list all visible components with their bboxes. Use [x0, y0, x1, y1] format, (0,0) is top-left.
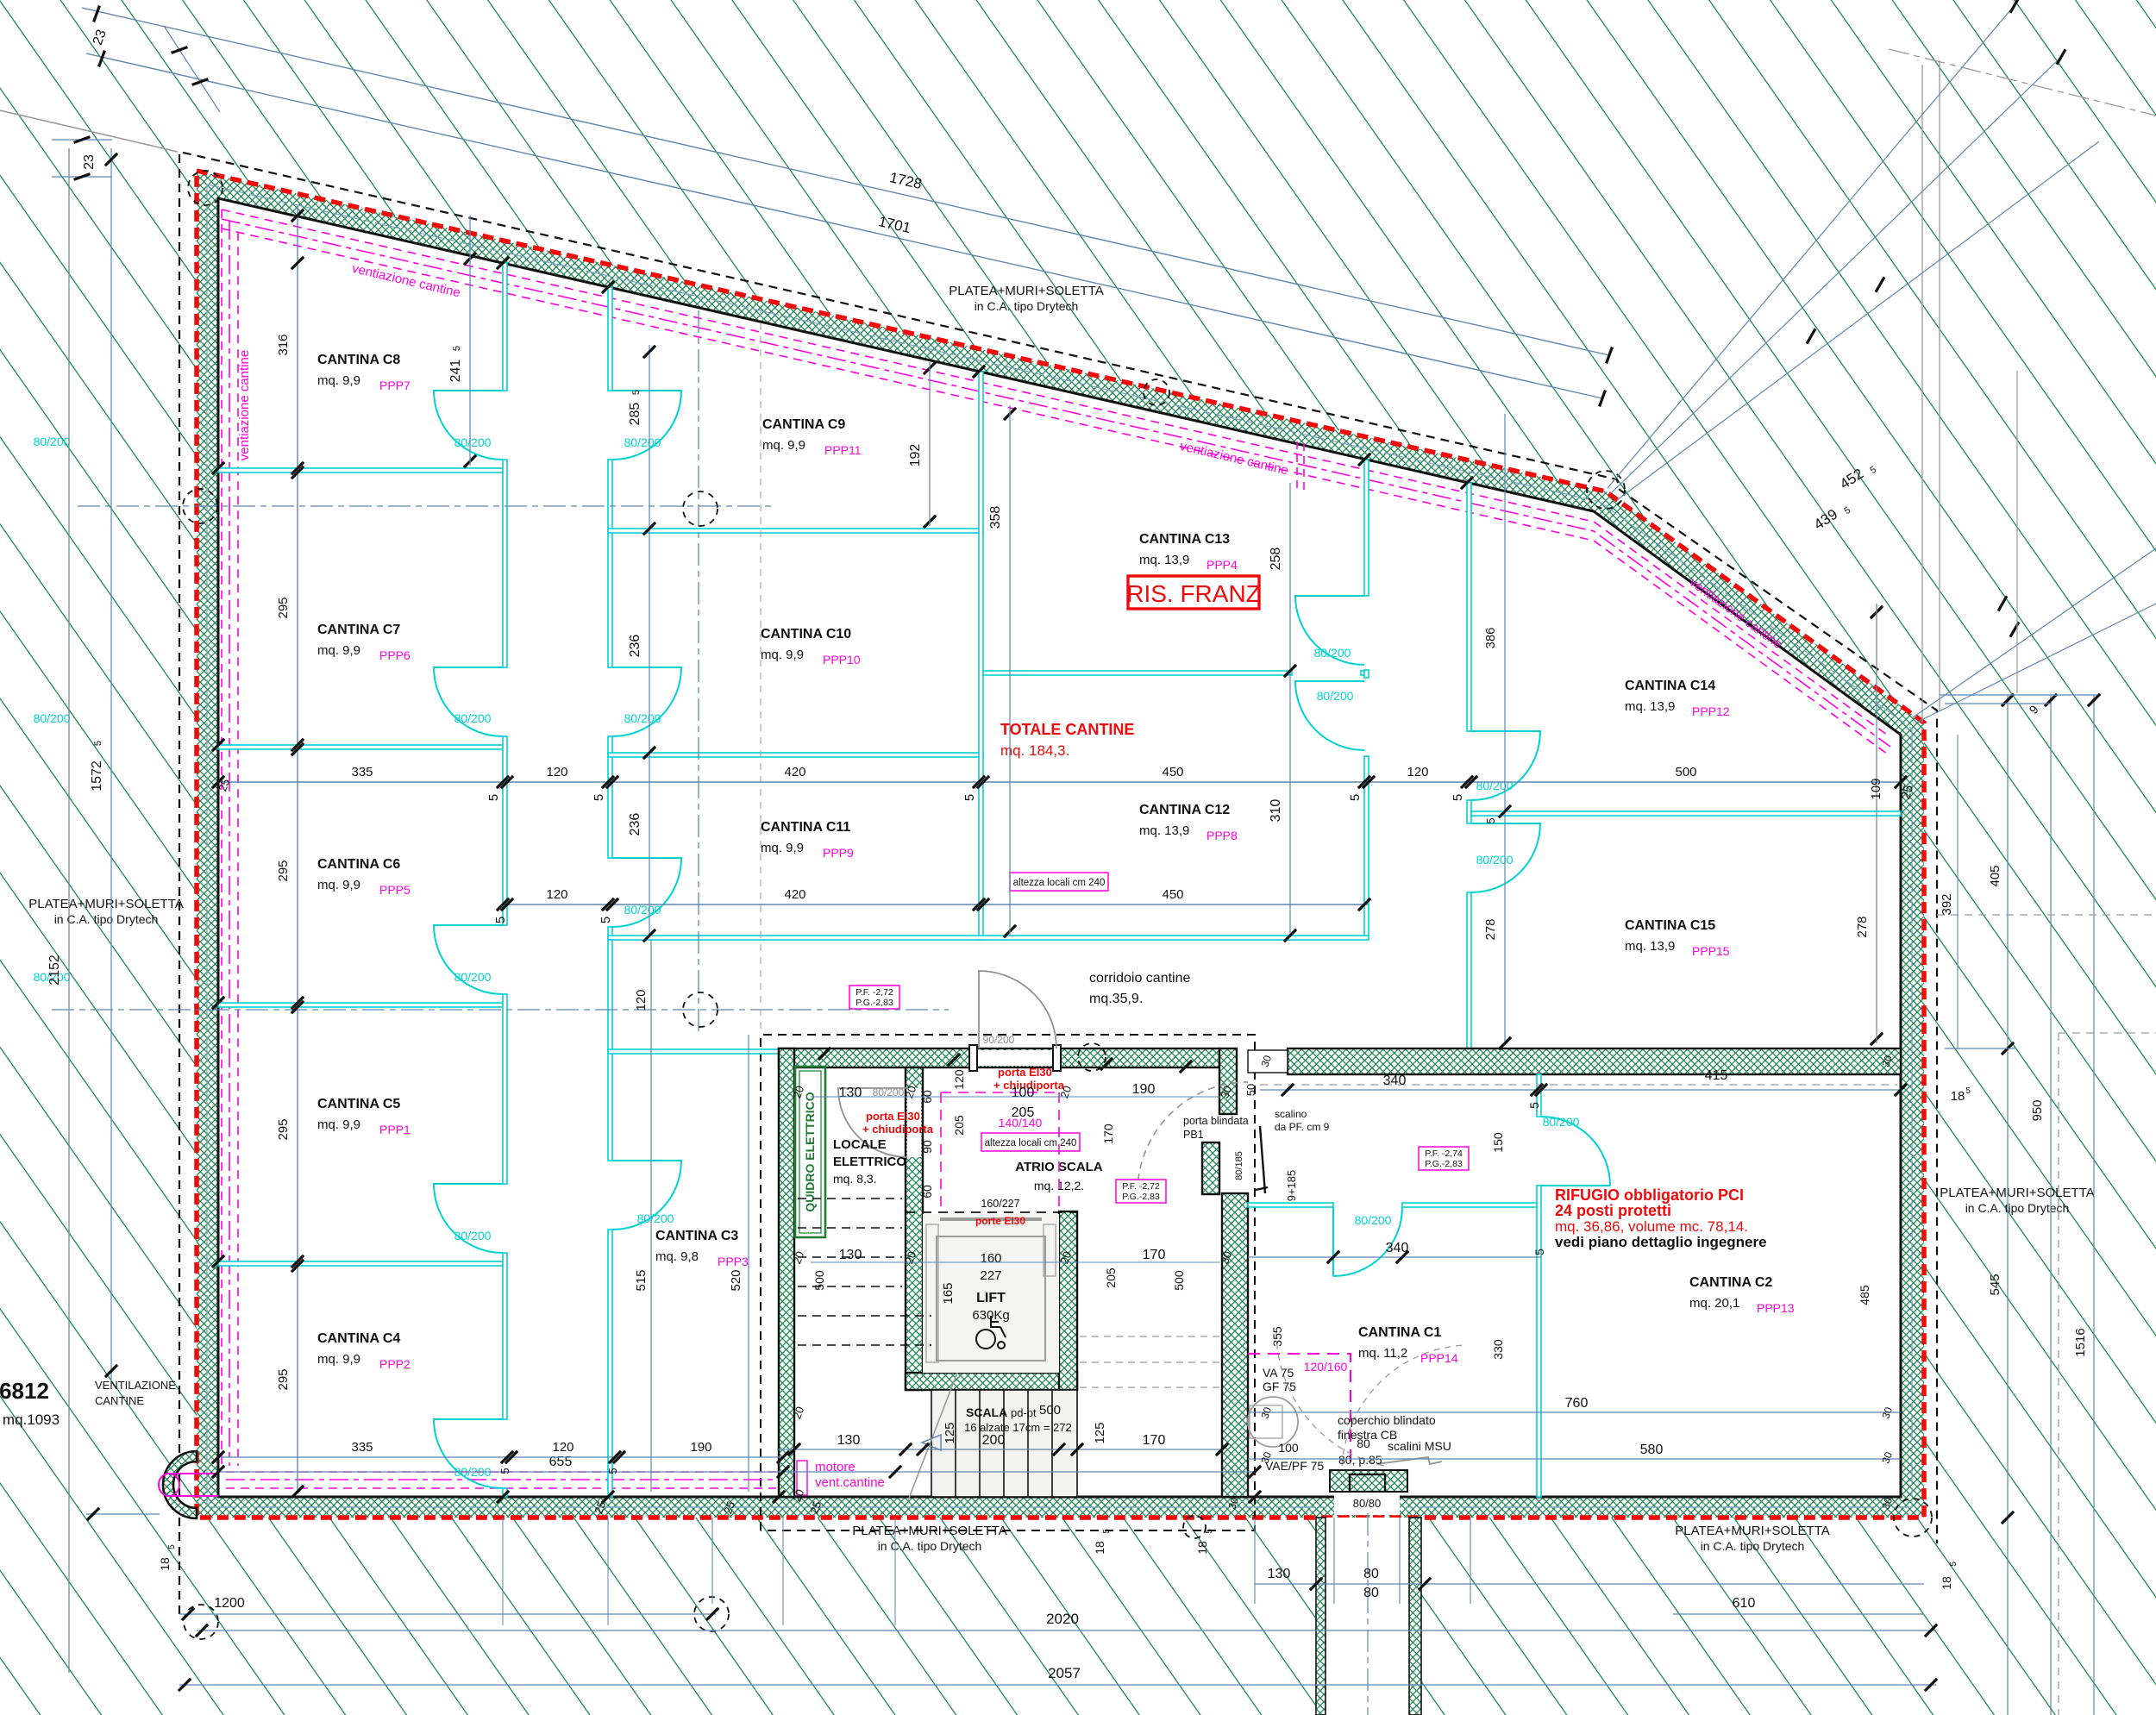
svg-text:RIFUGIO obbligatorio PCI: RIFUGIO obbligatorio PCI — [1555, 1186, 1744, 1204]
svg-text:5: 5 — [631, 390, 642, 395]
svg-text:90/200: 90/200 — [983, 1034, 1015, 1046]
svg-text:PPP12: PPP12 — [1692, 704, 1730, 718]
svg-text:545: 545 — [1988, 1274, 2002, 1295]
svg-text:P.G.-2,83: P.G.-2,83 — [1425, 1159, 1463, 1169]
svg-text:170: 170 — [1143, 1433, 1166, 1448]
svg-text:285: 285 — [628, 403, 642, 426]
svg-text:5: 5 — [1451, 794, 1465, 801]
svg-text:190: 190 — [1132, 1082, 1156, 1097]
svg-text:165: 165 — [941, 1282, 956, 1304]
svg-text:5: 5 — [962, 794, 977, 801]
svg-text:23: 23 — [82, 154, 97, 170]
svg-text:18: 18 — [1951, 1089, 1965, 1104]
svg-text:CANTINA C5: CANTINA C5 — [317, 1097, 400, 1111]
svg-text:altezza locali cm 240: altezza locali cm 240 — [985, 1138, 1077, 1149]
svg-text:CANTINA C6: CANTINA C6 — [317, 857, 400, 872]
svg-text:CANTINA C12: CANTINA C12 — [1139, 803, 1230, 817]
svg-text:295: 295 — [276, 1368, 291, 1390]
svg-text:2020: 2020 — [1046, 1611, 1079, 1627]
svg-text:5: 5 — [167, 1544, 177, 1549]
svg-text:278: 278 — [1855, 916, 1870, 937]
svg-text:VENTILAZIONE: VENTILAZIONE — [95, 1379, 176, 1392]
svg-text:CANTINA C15: CANTINA C15 — [1625, 918, 1715, 933]
svg-text:TOTALE CANTINE: TOTALE CANTINE — [1000, 721, 1134, 738]
svg-text:PLATEA+MURI+SOLETTA: PLATEA+MURI+SOLETTA — [1940, 1186, 2095, 1200]
svg-text:340: 340 — [1386, 1241, 1409, 1255]
svg-text:258: 258 — [1269, 548, 1283, 571]
svg-text:160/227: 160/227 — [981, 1198, 1019, 1210]
svg-text:RIS. FRANZ: RIS. FRANZ — [1126, 580, 1261, 607]
svg-text:CANTINA C14: CANTINA C14 — [1625, 679, 1715, 693]
svg-text:450: 450 — [1162, 765, 1183, 779]
svg-text:VAE/PF 75: VAE/PF 75 — [1265, 1459, 1324, 1473]
svg-text:CANTINE: CANTINE — [95, 1394, 144, 1407]
svg-text:80/200: 80/200 — [454, 711, 492, 725]
svg-text:1200: 1200 — [214, 1596, 245, 1611]
svg-text:CANTINA C11: CANTINA C11 — [761, 820, 850, 835]
svg-text:5: 5 — [592, 794, 606, 801]
svg-text:PPP2: PPP2 — [379, 1357, 411, 1371]
svg-text:PPP15: PPP15 — [1692, 944, 1730, 958]
svg-text:80/200: 80/200 — [454, 1229, 492, 1242]
svg-text:PPP6: PPP6 — [379, 648, 411, 662]
svg-text:CANTINA C2: CANTINA C2 — [1689, 1275, 1772, 1290]
svg-text:18: 18 — [1093, 1541, 1106, 1555]
svg-text:CANTINA C8: CANTINA C8 — [317, 353, 400, 367]
svg-text:mq.35,9.: mq.35,9. — [1089, 992, 1143, 1006]
svg-text:5: 5 — [1949, 1562, 1959, 1567]
svg-text:500: 500 — [1172, 1270, 1186, 1291]
svg-text:mq. 9,9: mq. 9,9 — [761, 648, 804, 662]
svg-text:scalini MSU: scalini MSU — [1388, 1439, 1451, 1453]
svg-text:PPP5: PPP5 — [379, 883, 411, 897]
svg-text:5: 5 — [606, 1468, 619, 1474]
svg-text:mq. 13,9: mq. 13,9 — [1625, 699, 1675, 714]
svg-text:LIFT: LIFT — [976, 1291, 1006, 1305]
svg-text:mq. 36,86, volume mc. 78,14.: mq. 36,86, volume mc. 78,14. — [1555, 1218, 1748, 1235]
svg-text:340: 340 — [1383, 1073, 1407, 1088]
svg-text:80/200: 80/200 — [1317, 689, 1354, 703]
svg-text:PLATEA+MURI+SOLETTA: PLATEA+MURI+SOLETTA — [28, 897, 184, 911]
svg-text:5: 5 — [452, 346, 462, 351]
svg-text:330: 330 — [1491, 1339, 1505, 1360]
svg-text:109: 109 — [1869, 778, 1883, 799]
svg-text:PLATEA+MURI+SOLETTA: PLATEA+MURI+SOLETTA — [1675, 1524, 1830, 1538]
svg-text:PPP14: PPP14 — [1420, 1351, 1458, 1365]
svg-text:130: 130 — [839, 1086, 862, 1100]
svg-text:mq. 11,2: mq. 11,2 — [1358, 1346, 1407, 1361]
svg-text:192: 192 — [908, 444, 923, 467]
svg-text:316: 316 — [276, 334, 291, 355]
svg-text:mq. 13,9: mq. 13,9 — [1139, 553, 1189, 567]
svg-text:5: 5 — [1102, 1529, 1112, 1534]
svg-text:335: 335 — [351, 765, 373, 779]
svg-text:in C.A. tipo Drytech: in C.A. tipo Drytech — [878, 1539, 982, 1553]
svg-text:80/80: 80/80 — [1353, 1497, 1382, 1510]
svg-text:580: 580 — [1640, 1443, 1664, 1457]
svg-text:120: 120 — [546, 887, 567, 902]
svg-text:5: 5 — [599, 917, 613, 923]
svg-text:CANTINA C9: CANTINA C9 — [762, 417, 845, 432]
svg-text:50: 50 — [1244, 1084, 1257, 1096]
svg-text:mq. 13,9: mq. 13,9 — [1139, 823, 1189, 838]
svg-text:190: 190 — [690, 1440, 711, 1455]
svg-text:950: 950 — [2030, 1099, 2045, 1121]
svg-text:mq. 9,9: mq. 9,9 — [317, 643, 360, 658]
svg-text:236: 236 — [628, 813, 642, 836]
svg-text:porta blindata: porta blindata — [1183, 1115, 1249, 1127]
svg-text:295: 295 — [276, 1118, 291, 1140]
svg-text:6812: 6812 — [0, 1378, 49, 1404]
svg-text:130: 130 — [837, 1433, 861, 1448]
svg-text:mq. 20,1: mq. 20,1 — [1689, 1296, 1739, 1311]
svg-text:80/200: 80/200 — [1355, 1213, 1392, 1227]
svg-text:760: 760 — [1565, 1396, 1589, 1411]
svg-text:450: 450 — [1162, 887, 1183, 902]
svg-text:5: 5 — [1532, 1249, 1546, 1255]
svg-text:200: 200 — [982, 1433, 1006, 1448]
svg-text:5: 5 — [1484, 817, 1497, 823]
svg-text:P.F. -2,72: P.F. -2,72 — [1122, 1181, 1160, 1192]
svg-text:ventiazione cantine: ventiazione cantine — [237, 350, 252, 460]
svg-text:80/200: 80/200 — [454, 970, 492, 984]
svg-text:1572: 1572 — [90, 760, 104, 792]
svg-text:mq. 9,8: mq. 9,8 — [655, 1249, 699, 1264]
svg-text:80/200: 80/200 — [34, 711, 71, 725]
svg-text:630Kg: 630Kg — [972, 1308, 1009, 1323]
svg-text:150: 150 — [1491, 1132, 1505, 1153]
svg-text:80/200: 80/200 — [1476, 853, 1514, 867]
svg-text:16 alzate 17cm = 272: 16 alzate 17cm = 272 — [964, 1421, 1072, 1434]
svg-text:130: 130 — [1268, 1567, 1291, 1581]
svg-text:80/200: 80/200 — [624, 435, 661, 449]
svg-text:120: 120 — [952, 1069, 966, 1090]
svg-text:PPP3: PPP3 — [718, 1255, 749, 1268]
svg-text:P.F. -2,72: P.F. -2,72 — [856, 987, 893, 998]
svg-text:295: 295 — [276, 860, 291, 881]
svg-text:170: 170 — [1101, 1124, 1115, 1144]
svg-text:80/200: 80/200 — [637, 1211, 674, 1225]
svg-text:125: 125 — [1093, 1422, 1107, 1443]
svg-text:5: 5 — [1527, 1102, 1541, 1109]
svg-text:5: 5 — [1348, 794, 1363, 801]
svg-text:420: 420 — [784, 887, 805, 902]
svg-text:5: 5 — [1965, 1086, 1971, 1096]
svg-text:80, p.85: 80, p.85 — [1338, 1453, 1382, 1467]
svg-text:24 posti protetti: 24 posti protetti — [1555, 1202, 1671, 1219]
svg-text:80/200: 80/200 — [454, 435, 492, 449]
svg-text:386: 386 — [1483, 627, 1498, 648]
svg-text:520: 520 — [729, 1269, 743, 1291]
svg-text:500: 500 — [1039, 1403, 1061, 1418]
svg-text:CANTINA C7: CANTINA C7 — [317, 623, 400, 637]
svg-text:120: 120 — [546, 765, 567, 779]
svg-text:392: 392 — [1940, 893, 1954, 915]
svg-text:vedi piano dettaglio ingegnere: vedi piano dettaglio ingegnere — [1555, 1234, 1767, 1250]
svg-text:PLATEA+MURI+SOLETTA: PLATEA+MURI+SOLETTA — [949, 284, 1104, 298]
svg-text:PPP9: PPP9 — [823, 846, 854, 860]
svg-text:80/200: 80/200 — [624, 711, 661, 725]
svg-text:P.F. -2,74: P.F. -2,74 — [1425, 1149, 1463, 1159]
svg-text:60: 60 — [920, 1185, 934, 1199]
svg-text:18: 18 — [1195, 1541, 1209, 1555]
svg-text:pd-pt: pd-pt — [1011, 1406, 1037, 1419]
svg-text:160: 160 — [980, 1251, 1001, 1266]
svg-text:2057: 2057 — [1048, 1665, 1081, 1681]
svg-text:80/200: 80/200 — [1476, 779, 1514, 792]
svg-text:GF 75: GF 75 — [1263, 1380, 1296, 1393]
svg-text:coperchio blindato: coperchio blindato — [1338, 1413, 1436, 1427]
svg-text:porta EI30: porta EI30 — [998, 1066, 1052, 1079]
svg-text:5: 5 — [498, 1468, 511, 1474]
svg-text:278: 278 — [1483, 918, 1498, 940]
svg-text:205: 205 — [1012, 1105, 1035, 1120]
svg-text:1516: 1516 — [2073, 1328, 2088, 1356]
svg-text:9+185: 9+185 — [1285, 1170, 1298, 1202]
svg-text:mq. 184,3.: mq. 184,3. — [1000, 742, 1069, 759]
svg-text:P.G.-2,83: P.G.-2,83 — [1122, 1192, 1160, 1202]
svg-text:310: 310 — [1269, 799, 1283, 823]
svg-text:515: 515 — [634, 1269, 649, 1291]
svg-text:+ chiudiporta: + chiudiporta — [862, 1123, 934, 1136]
svg-text:PPP4: PPP4 — [1206, 558, 1238, 572]
svg-text:QUIDRO ELETTRICO: QUIDRO ELETTRICO — [803, 1092, 817, 1211]
svg-text:120: 120 — [552, 1440, 573, 1455]
svg-text:porta EI30: porta EI30 — [866, 1110, 920, 1123]
svg-text:420: 420 — [784, 765, 805, 779]
svg-text:5: 5 — [1205, 1529, 1214, 1534]
svg-text:295: 295 — [276, 597, 291, 618]
svg-text:PPP11: PPP11 — [824, 443, 862, 457]
svg-text:80/200: 80/200 — [34, 435, 71, 448]
svg-text:mq. 8,3.: mq. 8,3. — [833, 1172, 877, 1186]
svg-text:120: 120 — [634, 989, 649, 1011]
svg-text:500: 500 — [812, 1270, 826, 1291]
svg-text:ELETTRICO: ELETTRICO — [833, 1155, 906, 1169]
svg-text:PPP1: PPP1 — [379, 1123, 411, 1136]
svg-text:mq. 9,9: mq. 9,9 — [317, 1117, 360, 1132]
svg-text:80: 80 — [1363, 1567, 1379, 1581]
svg-text:100: 100 — [1278, 1441, 1299, 1455]
svg-text:in C.A. tipo Drytech: in C.A. tipo Drytech — [1965, 1201, 2070, 1215]
svg-text:da PF. cm 9: da PF. cm 9 — [1275, 1121, 1330, 1133]
svg-text:CANTINA C3: CANTINA C3 — [655, 1229, 738, 1243]
svg-text:5: 5 — [486, 794, 501, 801]
svg-text:120: 120 — [1407, 765, 1428, 779]
svg-text:SCALA: SCALA — [966, 1405, 1007, 1419]
svg-text:80/200: 80/200 — [1543, 1115, 1580, 1129]
svg-text:100: 100 — [1012, 1086, 1035, 1100]
svg-text:porte EI30: porte EI30 — [975, 1215, 1025, 1227]
svg-text:PPP13: PPP13 — [1757, 1301, 1795, 1315]
svg-text:CANTINA C13: CANTINA C13 — [1139, 532, 1230, 547]
svg-text:5: 5 — [93, 741, 103, 746]
svg-text:mq. 9,9: mq. 9,9 — [761, 841, 804, 855]
svg-text:LOCALE: LOCALE — [833, 1137, 887, 1152]
svg-text:CANTINA C1: CANTINA C1 — [1358, 1325, 1441, 1340]
svg-text:P.G.-2,83: P.G.-2,83 — [856, 998, 893, 1008]
svg-text:mq. 9,9: mq. 9,9 — [762, 438, 805, 453]
svg-text:in C.A. tipo Drytech: in C.A. tipo Drytech — [54, 912, 159, 926]
svg-text:205: 205 — [952, 1115, 966, 1136]
svg-text:corridoio cantine: corridoio cantine — [1089, 971, 1191, 986]
svg-text:vent.cantine: vent.cantine — [815, 1475, 885, 1490]
svg-text:405: 405 — [1988, 865, 2002, 886]
svg-text:90: 90 — [920, 1140, 934, 1154]
svg-text:335: 335 — [351, 1440, 373, 1455]
svg-text:358: 358 — [988, 506, 1003, 529]
svg-text:18: 18 — [158, 1557, 172, 1571]
svg-text:mq. 9,9: mq. 9,9 — [317, 878, 360, 892]
svg-text:610: 610 — [1733, 1596, 1756, 1611]
svg-text:CANTINA C10: CANTINA C10 — [761, 627, 851, 642]
svg-text:PPP10: PPP10 — [823, 653, 861, 667]
svg-text:CANTINA C4: CANTINA C4 — [317, 1331, 400, 1346]
svg-text:mq. 9,9: mq. 9,9 — [317, 373, 360, 388]
svg-text:130: 130 — [839, 1248, 862, 1262]
svg-text:PPP7: PPP7 — [379, 379, 411, 392]
svg-text:80: 80 — [1363, 1586, 1379, 1600]
svg-text:485: 485 — [1858, 1285, 1871, 1305]
svg-text:2152: 2152 — [47, 955, 62, 986]
svg-text:125: 125 — [943, 1422, 957, 1443]
svg-text:18: 18 — [1940, 1576, 1953, 1590]
svg-text:241: 241 — [448, 360, 463, 383]
svg-text:PB1: PB1 — [1183, 1129, 1204, 1141]
svg-text:PLATEA+MURI+SOLETTA: PLATEA+MURI+SOLETTA — [852, 1524, 1007, 1538]
svg-text:mq.1093: mq.1093 — [3, 1411, 60, 1428]
svg-text:415: 415 — [1705, 1068, 1728, 1083]
svg-text:236: 236 — [628, 635, 642, 658]
svg-text:PPP8: PPP8 — [1206, 829, 1238, 842]
svg-text:80/200: 80/200 — [1314, 646, 1351, 660]
svg-text:altezza locali cm 240: altezza locali cm 240 — [1013, 878, 1106, 888]
svg-text:80: 80 — [1357, 1436, 1370, 1450]
svg-text:in C.A. tipo Drytech: in C.A. tipo Drytech — [975, 299, 1079, 313]
svg-text:mq. 13,9: mq. 13,9 — [1625, 939, 1675, 954]
svg-text:355: 355 — [1270, 1326, 1284, 1347]
svg-text:80/185: 80/185 — [1234, 1151, 1244, 1180]
svg-text:227: 227 — [980, 1268, 1001, 1283]
svg-text:scalino: scalino — [1275, 1108, 1307, 1120]
svg-text:500: 500 — [1675, 765, 1696, 779]
svg-text:170: 170 — [1143, 1248, 1166, 1262]
svg-text:VA 75: VA 75 — [1263, 1366, 1294, 1380]
svg-text:5: 5 — [493, 917, 508, 923]
svg-text:120/160: 120/160 — [1304, 1360, 1348, 1374]
svg-text:205: 205 — [1104, 1267, 1118, 1288]
svg-text:mq. 9,9: mq. 9,9 — [317, 1352, 360, 1367]
svg-text:in C.A. tipo Drytech: in C.A. tipo Drytech — [1701, 1539, 1805, 1553]
